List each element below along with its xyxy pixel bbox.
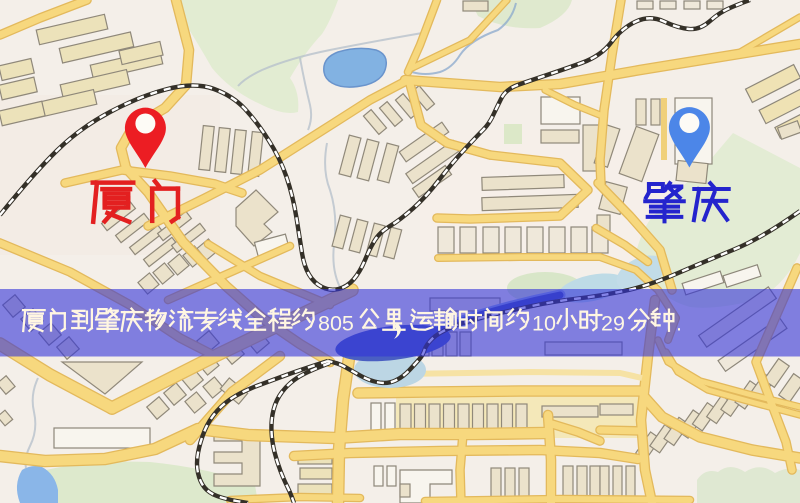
svg-text:805: 805 bbox=[318, 312, 354, 336]
svg-text:.: . bbox=[676, 312, 682, 336]
svg-text:10: 10 bbox=[532, 312, 556, 336]
svg-text:29: 29 bbox=[601, 312, 625, 336]
